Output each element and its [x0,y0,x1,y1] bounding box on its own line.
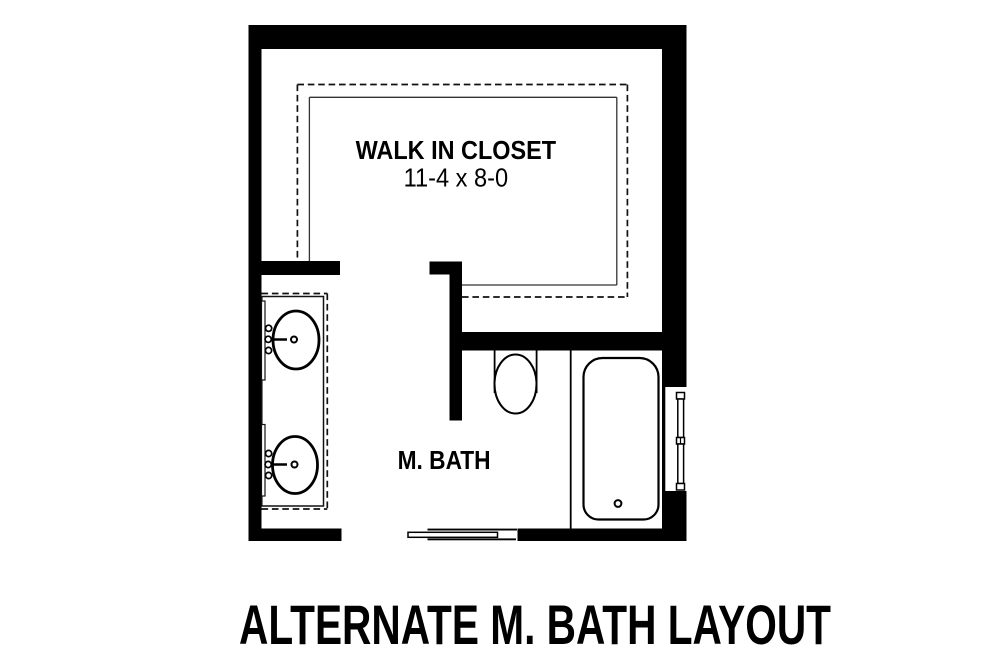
svg-text:M. BATH: M. BATH [398,445,491,475]
svg-text:ALTERNATE M. BATH LAYOUT: ALTERNATE M. BATH LAYOUT [239,594,831,656]
svg-text:11-4 x 8-0: 11-4 x 8-0 [404,163,509,193]
svg-text:WALK IN CLOSET: WALK IN CLOSET [356,135,557,165]
